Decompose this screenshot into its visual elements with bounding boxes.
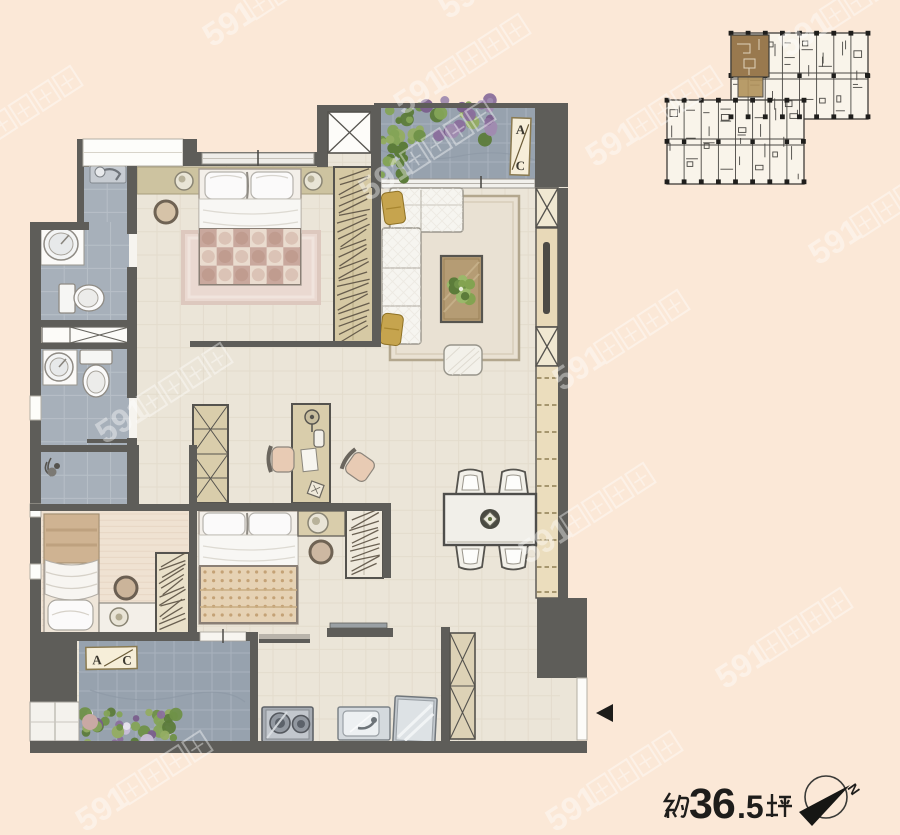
svg-text:36: 36 bbox=[689, 780, 735, 828]
svg-text:.5: .5 bbox=[737, 789, 764, 825]
svg-text:C: C bbox=[515, 158, 525, 173]
svg-text:A: A bbox=[92, 652, 102, 667]
